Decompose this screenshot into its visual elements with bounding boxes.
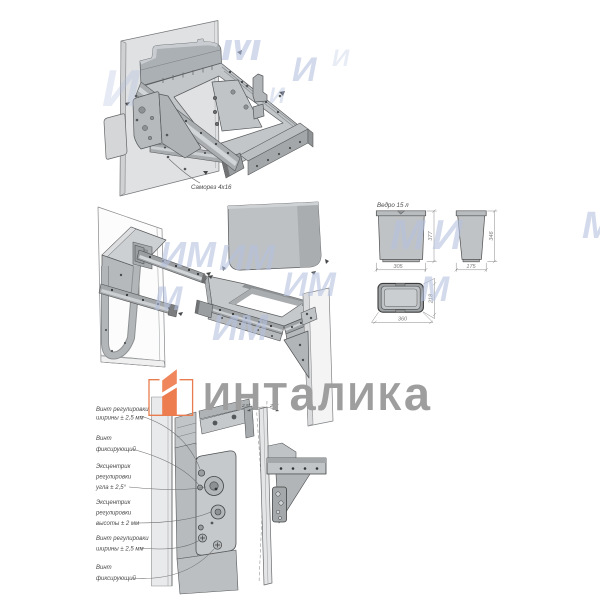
svg-text:ИМ: ИМ	[219, 237, 276, 278]
svg-text:Винт: Винт	[96, 436, 112, 442]
svg-text:фиксирующий: фиксирующий	[96, 575, 137, 582]
svg-text:М: М	[154, 280, 183, 318]
svg-text:М: М	[582, 205, 600, 247]
svg-text:ИМ: ИМ	[160, 234, 217, 275]
svg-text:И: И	[332, 45, 350, 72]
svg-text:ширины ± 2,5 мм: ширины ± 2,5 мм	[96, 416, 144, 422]
svg-text:175: 175	[466, 264, 476, 270]
svg-text:Саморез 4х16: Саморез 4х16	[191, 184, 232, 191]
svg-text:М: М	[420, 270, 450, 309]
svg-text:регулировки: регулировки	[95, 475, 132, 481]
svg-text:регулировки: регулировки	[95, 511, 132, 517]
svg-text:Эксцентрик: Эксцентрик	[96, 500, 132, 506]
svg-text:Ведро 15 л: Ведро 15 л	[377, 202, 409, 209]
svg-text:Винт регулировки: Винт регулировки	[96, 536, 149, 542]
svg-text:ИМ: ИМ	[283, 266, 336, 304]
svg-text:305: 305	[393, 264, 403, 270]
svg-text:И: И	[269, 83, 286, 108]
svg-text:высоты ± 2 мм: высоты ± 2 мм	[96, 521, 139, 527]
svg-text:МИ: МИ	[390, 211, 469, 258]
svg-text:угла ± 2,5°: угла ± 2,5°	[95, 485, 127, 491]
svg-text:Винт: Винт	[96, 565, 112, 571]
svg-text:346: 346	[489, 230, 495, 240]
svg-text:360: 360	[398, 317, 408, 323]
svg-text:ИМ: ИМ	[212, 307, 269, 348]
svg-text:И: И	[102, 60, 141, 118]
svg-text:И: И	[292, 51, 318, 89]
svg-text:фиксирующий: фиксирующий	[96, 446, 137, 453]
svg-text:Винт регулировки: Винт регулировки	[96, 407, 149, 413]
svg-text:Эксцентрик: Эксцентрик	[96, 464, 132, 470]
svg-text:ширины ± 2,5 мм: ширины ± 2,5 мм	[96, 547, 144, 553]
